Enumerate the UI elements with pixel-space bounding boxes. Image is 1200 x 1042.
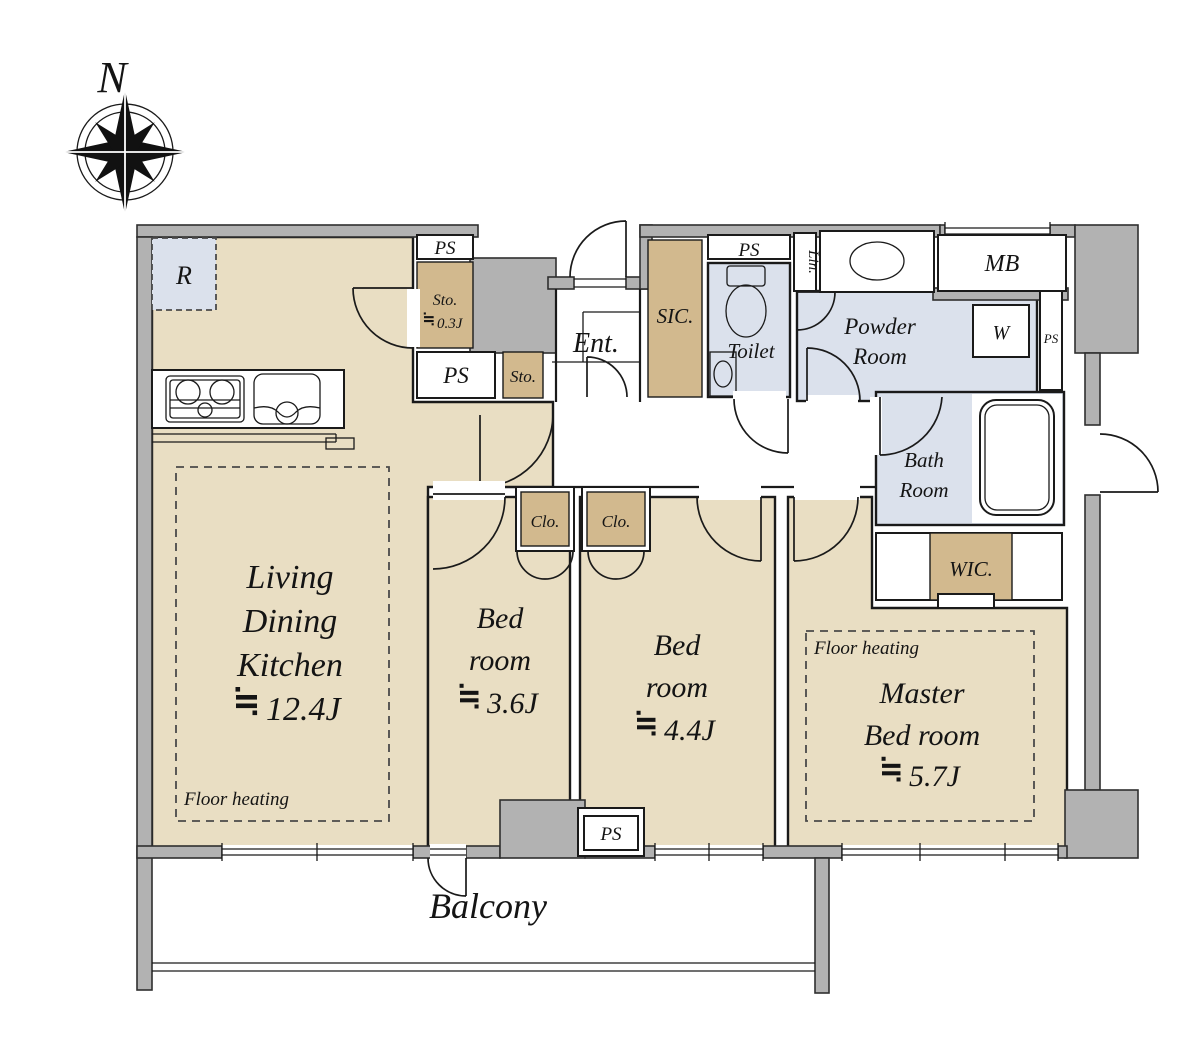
storage-small-area: 0.3J xyxy=(437,316,464,332)
master-label-line2: Bed room xyxy=(864,719,980,752)
ldk-label-line2: Dining xyxy=(242,603,337,640)
window-bedroom2 xyxy=(655,843,763,861)
refrigerator-label: R xyxy=(175,261,192,290)
washer-label: W xyxy=(993,322,1012,344)
bath-room-label-line2: Room xyxy=(899,478,949,502)
floor-plan-drawing: N R PS Sto. 0.3J PS Sto. Ent. SIC. PS To… xyxy=(0,0,1200,1042)
ldk-label-line1: Living xyxy=(246,559,334,596)
pipe-space-2-label: PS xyxy=(442,363,469,388)
closet-1-label: Clo. xyxy=(531,512,560,531)
washbasin-icon xyxy=(820,231,934,292)
bedroom2-area-label: 4.4J xyxy=(664,714,717,747)
bath-room-label-line1: Bath xyxy=(904,448,944,472)
powder-room-label-line1: Powder xyxy=(843,314,917,339)
pipe-space-bottom-label: PS xyxy=(599,824,622,845)
window-ldk xyxy=(222,843,413,861)
meter-box-label: MB xyxy=(984,251,1020,277)
bedroom2-label-line1: Bed xyxy=(654,629,702,662)
master-area-label: 5.7J xyxy=(909,760,962,793)
storage-label: Sto. xyxy=(510,367,536,386)
bedroom2-label-line2: room xyxy=(646,671,708,704)
entrance-label: Ent. xyxy=(572,328,619,359)
shoe-closet-label: SIC. xyxy=(657,304,694,328)
storage-small-label: Sto. xyxy=(433,292,457,309)
floor-plan-page: N R PS Sto. 0.3J PS Sto. Ent. SIC. PS To… xyxy=(0,0,1200,1042)
balcony-label: Balcony xyxy=(429,886,547,926)
linen-label: Lin. xyxy=(805,249,821,274)
room-toilet xyxy=(708,263,790,397)
bedroom1-area-label: 3.6J xyxy=(486,687,540,720)
master-label-line1: Master xyxy=(879,677,965,710)
pipe-space-top-label: PS xyxy=(433,238,456,259)
toilet-label: Toilet xyxy=(727,339,775,363)
ldk-floor-heating-label: Floor heating xyxy=(183,789,289,810)
walk-in-closet-label: WIC. xyxy=(949,557,993,581)
pipe-space-slot-label: PS xyxy=(1043,331,1059,346)
bedroom1-label-line1: Bed xyxy=(477,602,525,635)
powder-room-label-line2: Room xyxy=(852,344,907,369)
ldk-label-line3: Kitchen xyxy=(236,647,343,684)
bedroom1-label-line2: room xyxy=(469,644,531,677)
ldk-area-label: 12.4J xyxy=(266,691,343,728)
window-master xyxy=(842,843,1058,861)
compass-north-label: N xyxy=(96,53,129,102)
pipe-space-toilet-label: PS xyxy=(737,240,760,261)
master-floor-heating-label: Floor heating xyxy=(813,638,919,659)
bathtub-icon xyxy=(972,394,1062,523)
closet-2-label: Clo. xyxy=(602,512,631,531)
